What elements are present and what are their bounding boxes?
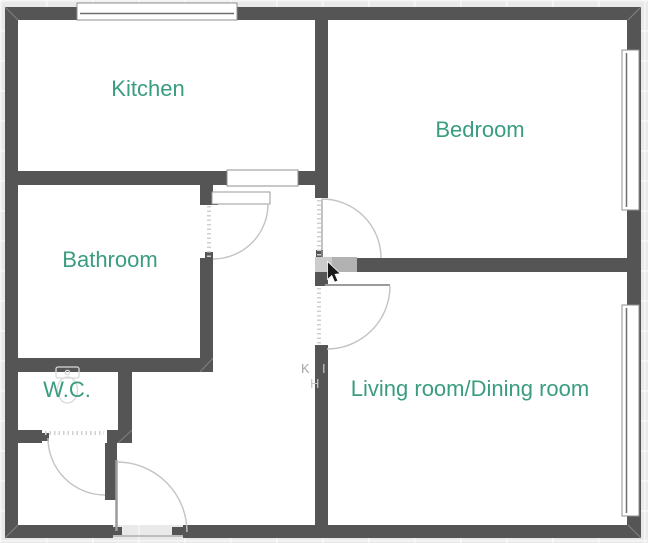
wall-bathroom-south[interactable] [18,358,213,372]
room-hallway[interactable] [213,185,315,525]
label-wc: W.C. [43,377,91,402]
front-door-hinge-right [172,527,184,536]
label-kitchen: Kitchen [111,76,184,101]
window-hall-passthrough[interactable] [227,170,298,186]
watermark-letter-h: H [310,376,319,391]
label-bathroom: Bathroom [62,247,157,272]
wall-central-mid[interactable] [315,272,328,286]
wall-outer-bottom-right[interactable] [183,525,641,538]
wall-outer-left[interactable] [5,7,18,538]
wall-bedroom-living-divider[interactable] [357,258,627,272]
label-living-dining: Living room/Dining room [351,376,589,401]
watermark-letter-i: I [322,361,326,376]
wall-bathroom-hall-lower[interactable] [200,258,213,372]
label-bedroom: Bedroom [435,117,524,142]
wall-central-upper[interactable] [315,20,328,198]
wall-wc-south-left[interactable] [18,430,42,443]
wall-entry-divider[interactable] [105,443,117,500]
floor-plan-canvas: Kitchen Bedroom Bathroom W.C. Living roo… [0,0,648,543]
floor-plan: Kitchen Bedroom Bathroom W.C. Living roo… [0,0,648,543]
window-kitchen-top[interactable] [77,3,237,20]
watermark-letter-k: K [301,361,310,376]
wall-outer-bottom-left[interactable] [5,525,113,538]
window-living-right[interactable] [622,305,639,516]
bathroom-door-leaf[interactable] [212,192,270,204]
window-bedroom-right[interactable] [622,50,639,210]
